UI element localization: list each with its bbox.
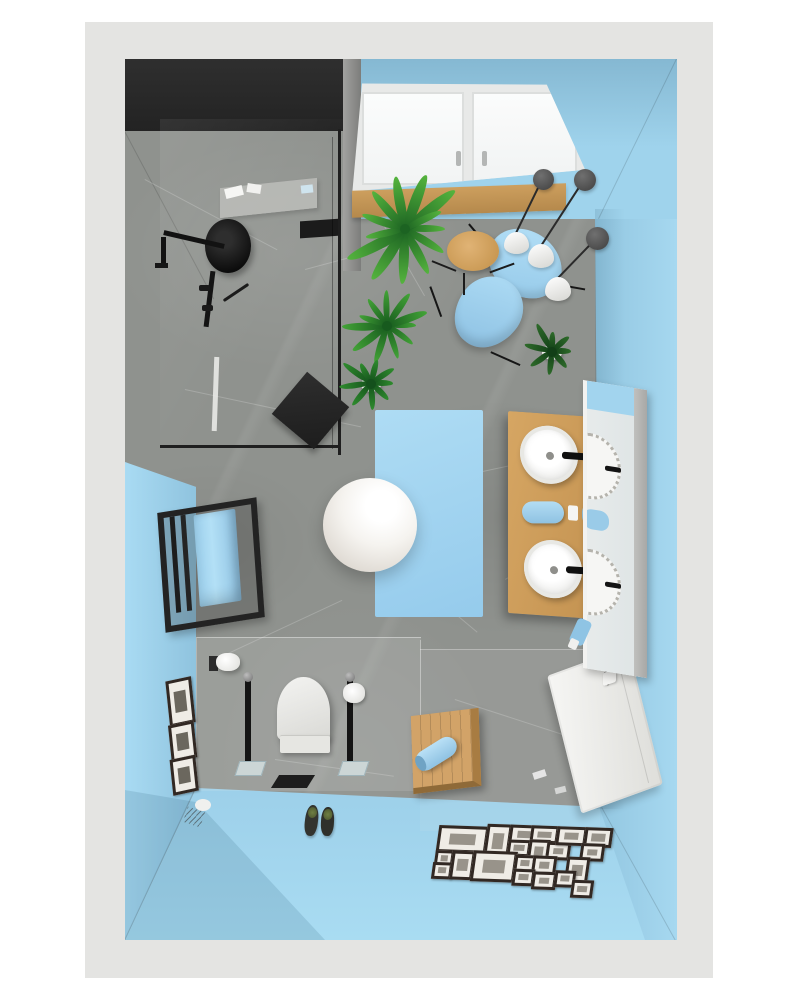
gallery-frame-image xyxy=(513,845,524,851)
gallery-frame-image xyxy=(440,855,449,861)
toilet-brush-stand-pole xyxy=(245,679,251,767)
gallery-frame-image xyxy=(560,876,570,882)
shelf-soap-item xyxy=(301,184,314,193)
gallery-frame-image xyxy=(586,849,598,856)
gallery-frame-image xyxy=(449,833,477,845)
plant-center xyxy=(366,379,376,389)
side-table-leg-3 xyxy=(463,273,465,295)
gallery-frame-image xyxy=(537,831,551,838)
gallery-wall xyxy=(428,822,617,896)
wooden-side-table xyxy=(447,231,499,271)
shower-arm-bracket xyxy=(155,263,168,268)
gallery-frame-image xyxy=(538,877,550,884)
toilet-brush-stand-knob xyxy=(243,672,253,682)
sink-drain xyxy=(546,451,554,460)
wall-frame-image xyxy=(173,689,187,713)
plant-center xyxy=(382,321,392,331)
wall-frame-image xyxy=(176,732,190,751)
window-handle-right xyxy=(482,151,487,166)
gallery-frame-image xyxy=(518,874,528,880)
gallery-frame-image xyxy=(552,848,564,855)
gallery-frame xyxy=(570,880,595,899)
radiator-slat-1 xyxy=(170,516,182,613)
pendant-shade xyxy=(545,277,571,301)
gallery-frame-image xyxy=(491,833,505,849)
mirror-frame-side xyxy=(634,388,647,678)
shower-valve-knob-1 xyxy=(199,285,210,291)
slipper-right-fuzz xyxy=(323,809,333,820)
pendant-shade xyxy=(528,244,554,268)
window-pane-left xyxy=(362,92,464,186)
wall-frame-image xyxy=(177,766,190,785)
mirror-reflection-sink-2 xyxy=(583,544,621,620)
mirror-reflection-sink-1 xyxy=(583,428,621,504)
pendant-disc xyxy=(586,227,609,250)
gallery-frame-image xyxy=(538,861,550,868)
shower-valve-knob-2 xyxy=(202,305,213,311)
slipper-left-fuzz xyxy=(307,807,317,819)
toilet-base xyxy=(280,735,330,753)
pendant-shade xyxy=(504,232,529,254)
toilet-brush-stand-base xyxy=(235,761,267,776)
gallery-frame-image xyxy=(520,860,530,866)
shower-niche xyxy=(300,219,340,239)
mirror-reflection-towel xyxy=(583,508,609,532)
toilet-paper-stand-roll xyxy=(343,683,365,703)
gallery-frame-image xyxy=(437,867,446,873)
toilet-paper-stand-base xyxy=(338,761,370,776)
wooden-bench xyxy=(411,708,481,794)
gallery-frame-image xyxy=(456,859,468,872)
plant-center xyxy=(400,224,410,234)
image-matte xyxy=(85,22,713,978)
plant-center xyxy=(547,347,557,357)
page-background xyxy=(0,0,800,1000)
blue-towel-hanging xyxy=(193,509,241,607)
sink-drain xyxy=(550,565,558,574)
gallery-frame xyxy=(470,850,518,882)
vanity-mirror xyxy=(583,380,647,678)
sphere-lamp xyxy=(323,478,417,572)
toilet-paper-roll-wall xyxy=(216,653,240,671)
towel-radiator xyxy=(157,497,265,632)
bathroom-render xyxy=(125,59,677,940)
gallery-frame-image xyxy=(482,859,507,873)
wall-frame xyxy=(170,755,199,796)
window-handle-left xyxy=(456,151,461,166)
counter-towel-roll-1 xyxy=(521,501,564,523)
toilet-paper-stand-knob xyxy=(345,672,355,682)
radiator-slat-2 xyxy=(180,515,192,612)
gallery-frame-image xyxy=(564,832,579,839)
counter-soap xyxy=(568,505,578,521)
gallery-frame-image xyxy=(591,833,605,841)
gallery-frame-image xyxy=(577,886,587,893)
toilet-bowl xyxy=(277,677,330,741)
pendant-disc xyxy=(574,169,596,191)
pendant-disc xyxy=(533,169,554,190)
